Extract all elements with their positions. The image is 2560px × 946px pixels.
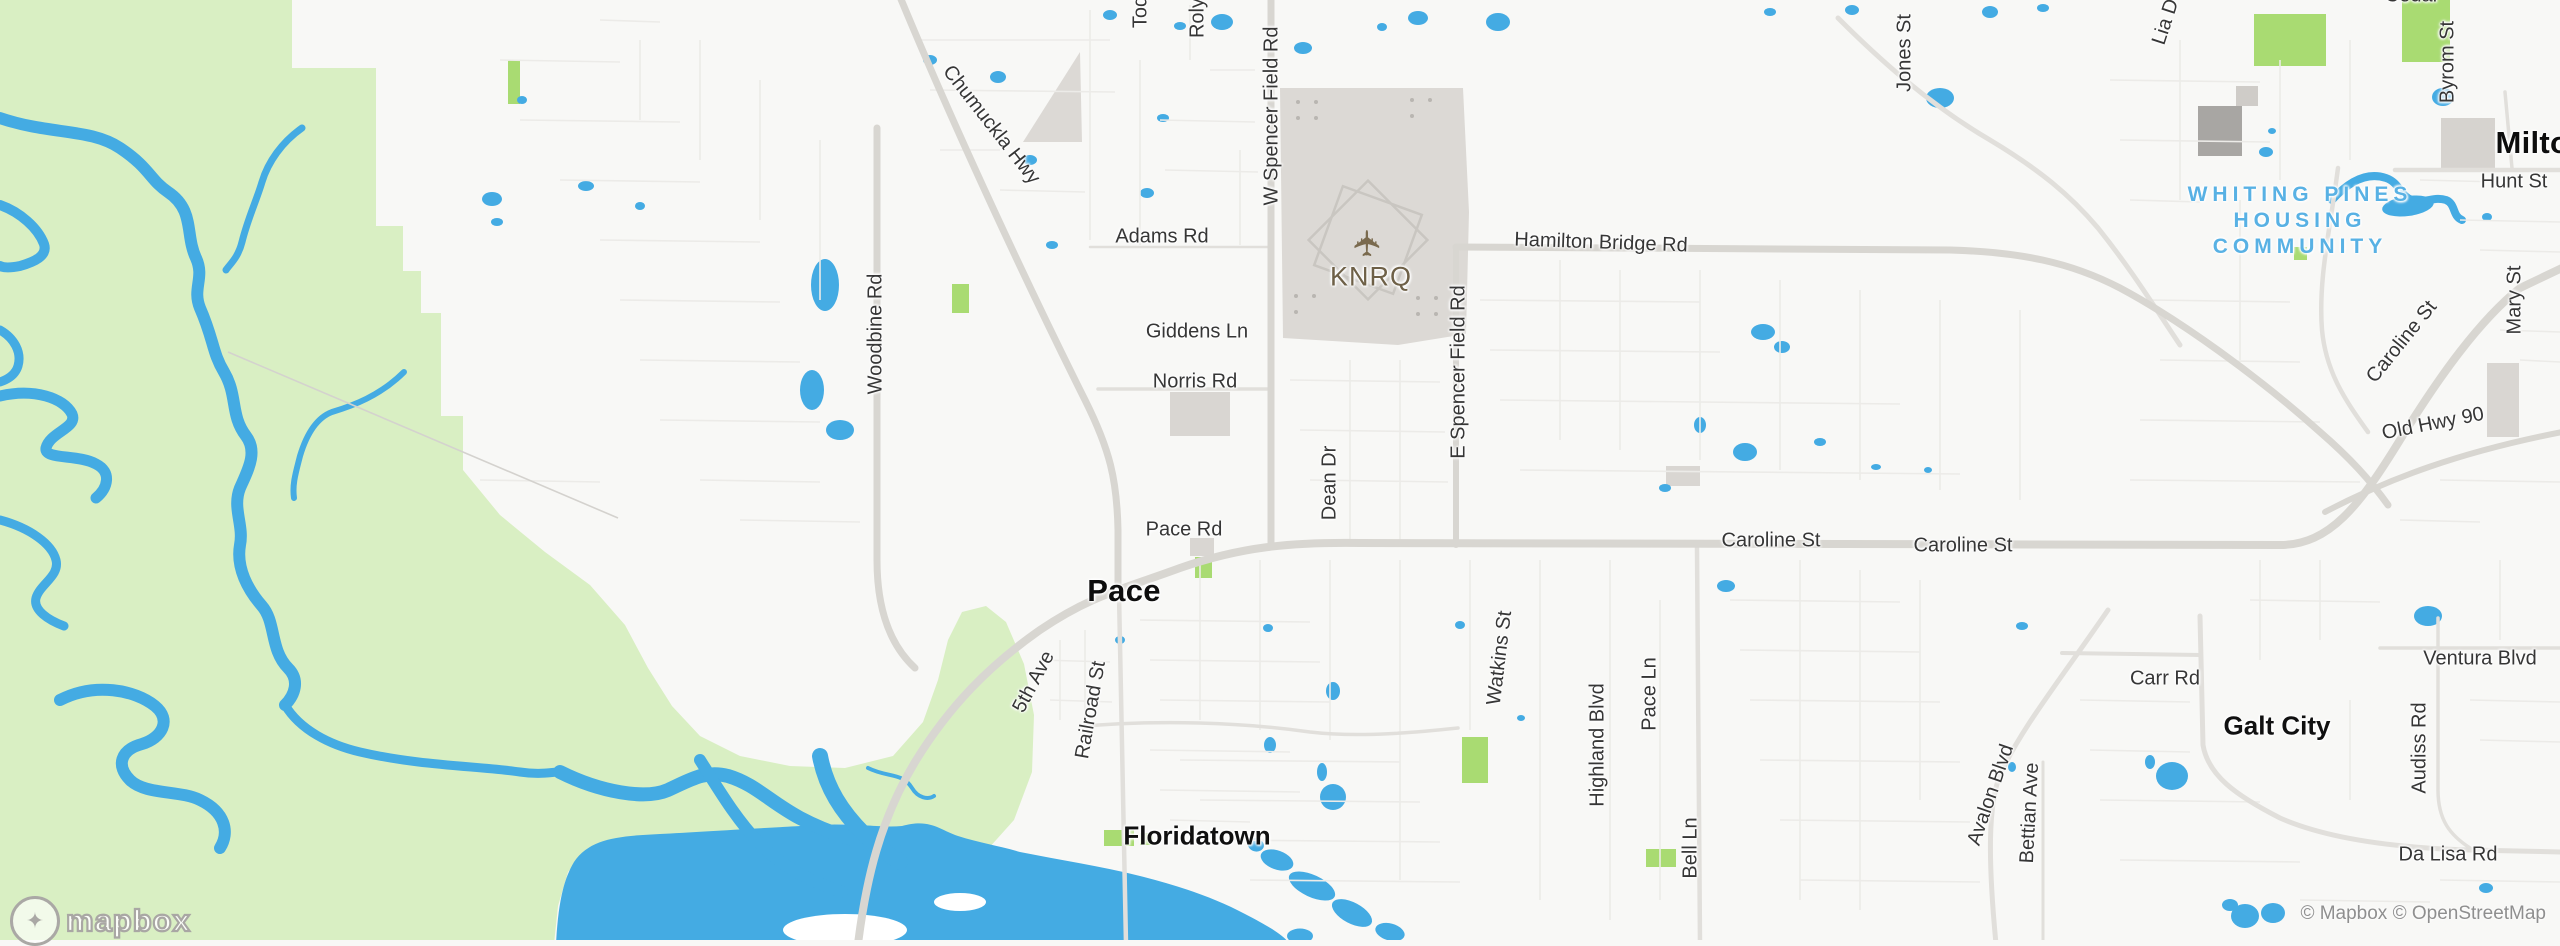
place-label-pace: Pace [1087,573,1161,609]
road-label-highland-blvd: Highland Blvd [1587,683,1610,806]
road-label-da-lisa-rd: Da Lisa Rd [2399,844,2498,867]
road-label-e-spencer-field-rd: E Spencer Field Rd [1448,285,1471,458]
place-label-floridatown: Floridatown [1123,821,1270,852]
road-label-giddens-ln: Giddens Ln [1146,321,1248,344]
map-canvas[interactable]: Tod Roly W Spencer Field Rd Chumuckla Hw… [0,0,2560,940]
road-label-adams-rd: Adams Rd [1115,226,1208,249]
road-label-cedar: Cedar [2385,0,2439,8]
road-label-norris-rd: Norris Rd [1153,371,1237,394]
mapbox-wordmark: mapbox [66,903,191,939]
road-label-tod: Tod [1130,0,1153,28]
area-label-whiting-pines-2: HOUSING [2233,209,2366,233]
road-label-bell-ln: Bell Ln [1680,817,1703,878]
road-label-byrom-st: Byrom St [2437,21,2460,103]
road-label-woodbine-rd: Woodbine Rd [865,274,888,395]
road-label-w-spencer-field-rd: W Spencer Field Rd [1261,27,1284,206]
airplane-icon: ✈ [1347,228,1389,258]
road-label-caroline-st-west: Caroline St [1722,530,1821,553]
area-label-whiting-pines-1: WHITING PINES [2188,183,2413,207]
road-label-ventura-blvd: Ventura Blvd [2423,648,2536,671]
place-label-galt-city: Galt City [2224,711,2331,742]
road-label-audiss-rd: Audiss Rd [2409,702,2432,793]
road-label-hunt-st: Hunt St [2481,171,2548,194]
airport-label-knrq: KNRQ [1330,262,1412,293]
road-label-caroline-st-east: Caroline St [1914,535,2013,558]
road-label-carr-rd: Carr Rd [2130,668,2200,691]
map-attribution[interactable]: © Mapbox © OpenStreetMap [2300,903,2546,925]
mapbox-pin-icon: ✦ [10,896,60,946]
road-label-dean-dr: Dean Dr [1319,446,1342,520]
road-label-roly: Roly [1187,0,1210,38]
place-label-milton: Milton [2495,125,2560,161]
area-label-whiting-pines-3: COMMUNITY [2213,235,2388,259]
mapbox-logo[interactable]: ✦ mapbox [10,896,191,946]
road-label-pace-ln: Pace Ln [1639,657,1662,730]
road-label-jones-st: Jones St [1894,14,1917,92]
road-label-pace-rd: Pace Rd [1146,519,1223,542]
road-label-mary-st: Mary St [2504,266,2527,335]
